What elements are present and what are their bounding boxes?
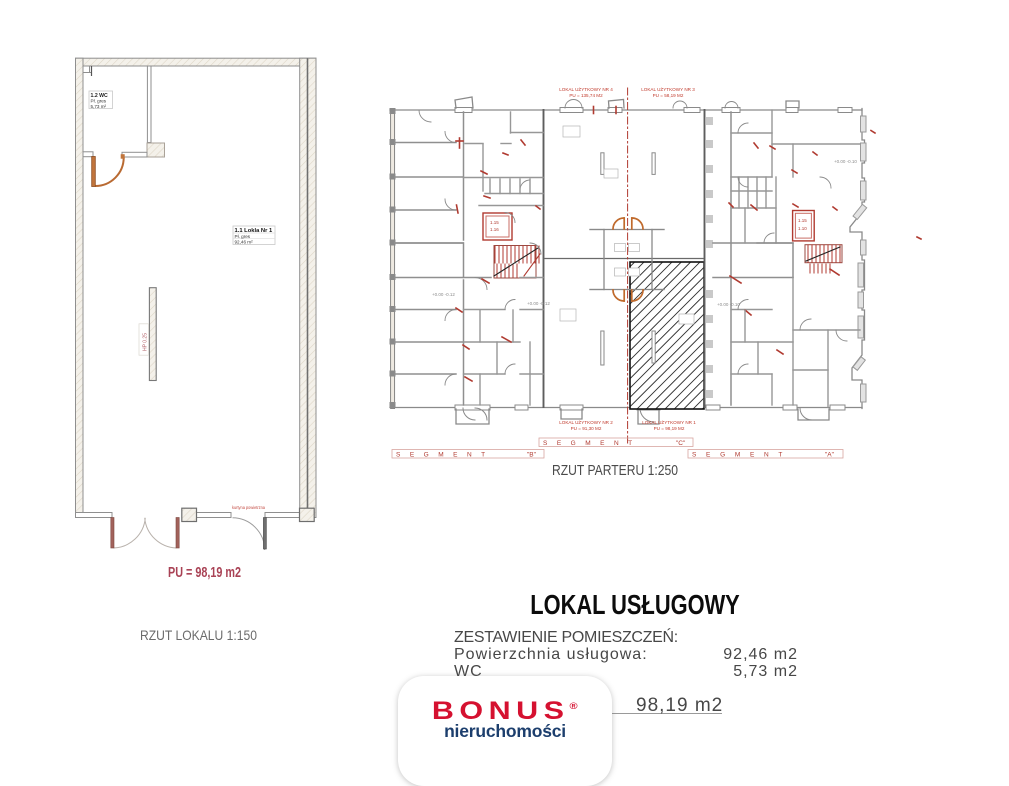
svg-text:SEGMENT: SEGMENT [692,452,792,459]
svg-text:PU = 91,30 M2: PU = 91,30 M2 [571,426,602,431]
svg-text:SEGMENT: SEGMENT [396,452,495,459]
svg-text:LOKAL UŻYTKOWY NR 4: LOKAL UŻYTKOWY NR 4 [559,86,613,92]
svg-text:"A": "A" [825,452,835,459]
svg-text:PU = 135,74 M2: PU = 135,74 M2 [569,93,603,98]
svg-text:+0.00 -0.10: +0.00 -0.10 [834,159,857,164]
svg-text:1.10: 1.10 [798,226,807,231]
svg-text:PU = 98,19 M2: PU = 98,19 M2 [654,426,685,431]
svg-text:+0.00 -0.10: +0.00 -0.10 [717,302,740,307]
svg-text:"B": "B" [527,452,537,459]
svg-text:PU = 58,19 M2: PU = 58,19 M2 [653,93,684,98]
svg-text:LOKAL UŻYTKOWY NR 1: LOKAL UŻYTKOWY NR 1 [642,419,696,425]
svg-text:SEGMENT: SEGMENT [543,440,642,447]
svg-text:"C": "C" [676,440,686,447]
svg-text:+0.00 -0.12: +0.00 -0.12 [527,301,550,306]
svg-text:1.15: 1.15 [798,218,807,223]
svg-text:LOKAL UŻYTKOWY NR 3: LOKAL UŻYTKOWY NR 3 [641,86,695,92]
svg-text:1.15: 1.15 [490,220,499,225]
svg-text:LOKAL UŻYTKOWY NR 2: LOKAL UŻYTKOWY NR 2 [559,419,613,425]
svg-text:+0.00 -0.12: +0.00 -0.12 [432,292,455,297]
svg-text:1.16: 1.16 [490,227,499,232]
svg-text:RZUT PARTERU 1:250: RZUT PARTERU 1:250 [552,462,678,479]
